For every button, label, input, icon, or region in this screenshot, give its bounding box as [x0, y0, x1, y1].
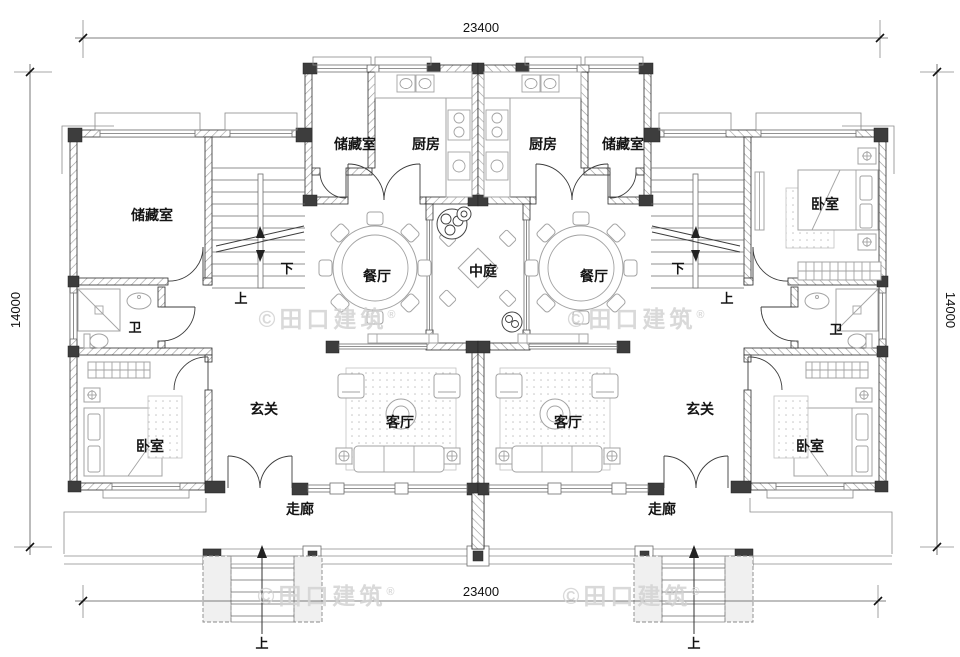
- label-storage-main: 储藏室: [130, 207, 173, 223]
- label-bedroom-bottom-right: 卧室: [796, 438, 824, 454]
- label-up-right: 上: [720, 291, 733, 306]
- label-kitchen-right: 厨房: [529, 136, 557, 152]
- label-kitchen-left: 厨房: [412, 136, 440, 152]
- label-storage-top-left: 储藏室: [333, 136, 376, 152]
- bedroom-topright-furniture: [755, 148, 881, 280]
- label-foyer-left: 玄关: [250, 401, 278, 417]
- label-bedroom-top-right: 卧室: [811, 196, 839, 212]
- label-down-right: 下: [671, 261, 684, 276]
- dim-left: 14000: [8, 292, 23, 328]
- floor-plan-canvas: 23400 23400 14000 14000 ©田口建筑® ©田口建筑® ©田…: [0, 0, 960, 657]
- watermark: ©田口建筑®: [258, 306, 395, 332]
- watermark: ©田口建筑®: [562, 583, 699, 609]
- label-dining-right: 餐厅: [579, 268, 608, 284]
- label-bath-right: 卫: [829, 322, 842, 337]
- label-foyer-right: 玄关: [686, 401, 714, 417]
- label-bath-left: 卫: [128, 320, 141, 335]
- label-living-left: 客厅: [385, 414, 414, 430]
- label-dining-left: 餐厅: [362, 268, 391, 284]
- dim-top: 23400: [463, 20, 499, 35]
- label-up-entry-right: 上: [687, 636, 700, 651]
- label-corridor-left: 走廊: [286, 501, 314, 517]
- dim-bottom: 23400: [463, 584, 499, 599]
- floor-plan-drawing: 23400 23400 14000 14000 ©田口建筑® ©田口建筑® ©田…: [0, 0, 960, 657]
- label-atrium: 中庭: [469, 263, 498, 279]
- watermark: ©田口建筑®: [257, 583, 394, 609]
- label-up-left: 上: [234, 291, 247, 306]
- label-storage-top-right: 储藏室: [601, 136, 644, 152]
- label-down-left: 下: [280, 261, 293, 276]
- label-corridor-right: 走廊: [648, 501, 676, 517]
- watermark: ©田口建筑®: [567, 306, 704, 332]
- dim-right: 14000: [943, 292, 958, 328]
- label-living-right: 客厅: [553, 414, 582, 430]
- label-up-entry-left: 上: [255, 636, 268, 651]
- label-bedroom-bottom-left: 卧室: [136, 438, 164, 454]
